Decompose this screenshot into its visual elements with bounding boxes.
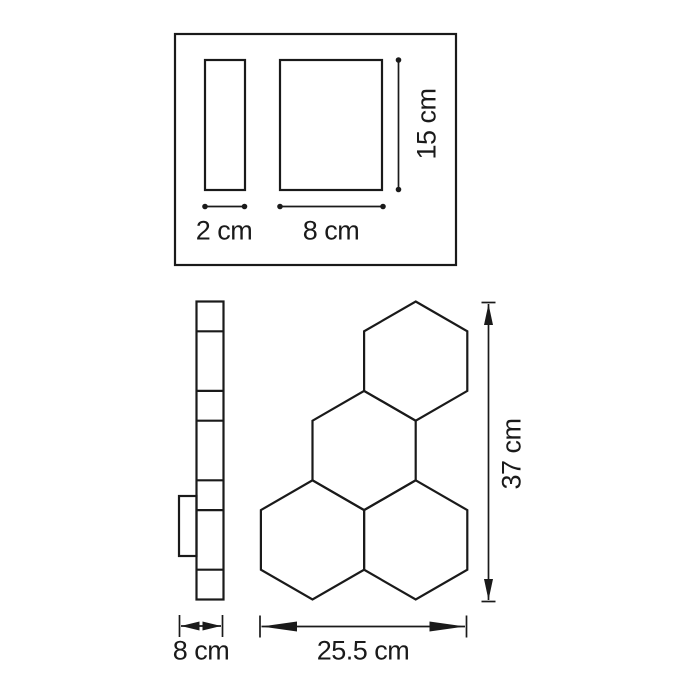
dimension-drawing xyxy=(0,0,700,700)
right-arrowhead-icon xyxy=(430,622,466,632)
hexagon-tile-middle xyxy=(313,391,416,510)
dim-label-tile-height: 15 cm xyxy=(412,88,443,159)
tile-front-face-rect xyxy=(280,60,382,190)
hexagon-cluster-front-view xyxy=(261,302,467,600)
hexagon-tile-bottom-left xyxy=(261,480,364,599)
dim-label-tile-depth: 2 cm xyxy=(196,216,253,247)
left-arrowhead-icon xyxy=(181,622,200,631)
dimension-line-cluster-width xyxy=(260,616,467,638)
hexagon-tile-top xyxy=(364,302,467,421)
wall-mount-bracket-rect xyxy=(179,496,197,556)
dimension-dot xyxy=(396,57,402,63)
dimension-line-tile-depth xyxy=(202,204,247,210)
down-arrowhead-icon xyxy=(484,579,493,600)
dimension-dot xyxy=(242,204,248,210)
dim-label-fixture-depth: 8 cm xyxy=(173,636,230,667)
dim-label-cluster-height: 37 cm xyxy=(497,418,528,489)
dimension-dot xyxy=(277,204,283,210)
fixture-side-elevation xyxy=(179,302,224,600)
dimension-line-tile-width xyxy=(277,204,386,210)
technical-drawing-canvas: 2 cm 8 cm 15 cm 8 cm 25.5 cm 37 cm xyxy=(0,0,700,700)
dimension-dot xyxy=(396,187,402,193)
left-arrowhead-icon xyxy=(262,622,298,632)
dimension-dot xyxy=(202,204,208,210)
dim-label-tile-width: 8 cm xyxy=(303,216,360,247)
dimension-dot xyxy=(380,204,386,210)
dim-label-cluster-width: 25.5 cm xyxy=(317,636,410,667)
dimension-line-fixture-depth xyxy=(180,615,223,637)
tile-side-profile-rect xyxy=(205,60,245,190)
dimension-line-tile-height xyxy=(396,57,402,192)
side-strip-outline xyxy=(197,302,224,600)
hexagon-tile-bottom-right xyxy=(364,480,467,599)
up-arrowhead-icon xyxy=(484,304,493,325)
right-arrowhead-icon xyxy=(203,622,222,631)
dimension-line-cluster-height xyxy=(482,303,496,602)
